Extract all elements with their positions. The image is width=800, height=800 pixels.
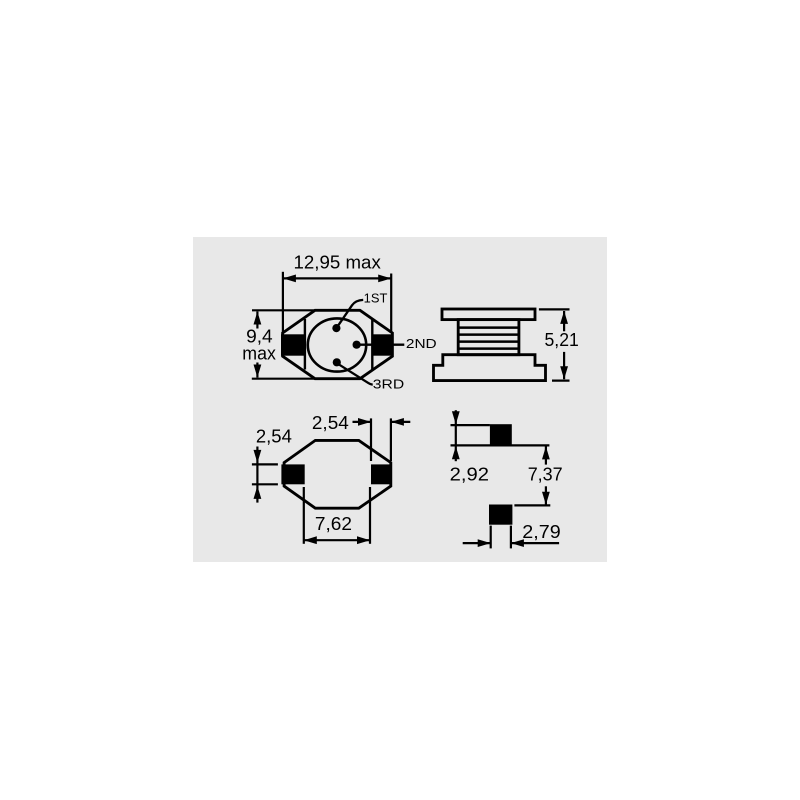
svg-text:7,37: 7,37 <box>528 464 563 484</box>
svg-text:12,95 max: 12,95 max <box>294 252 381 272</box>
svg-text:max: max <box>242 343 276 363</box>
svg-text:2,92: 2,92 <box>450 464 489 484</box>
svg-text:1ST: 1ST <box>364 292 388 306</box>
svg-text:2,54: 2,54 <box>312 413 349 433</box>
svg-text:5,21: 5,21 <box>545 330 579 350</box>
svg-text:2ND: 2ND <box>406 337 437 351</box>
svg-text:7,62: 7,62 <box>315 514 352 534</box>
svg-text:2,54: 2,54 <box>256 426 292 446</box>
svg-text:2,79: 2,79 <box>522 522 560 542</box>
svg-text:3RD: 3RD <box>373 377 404 391</box>
